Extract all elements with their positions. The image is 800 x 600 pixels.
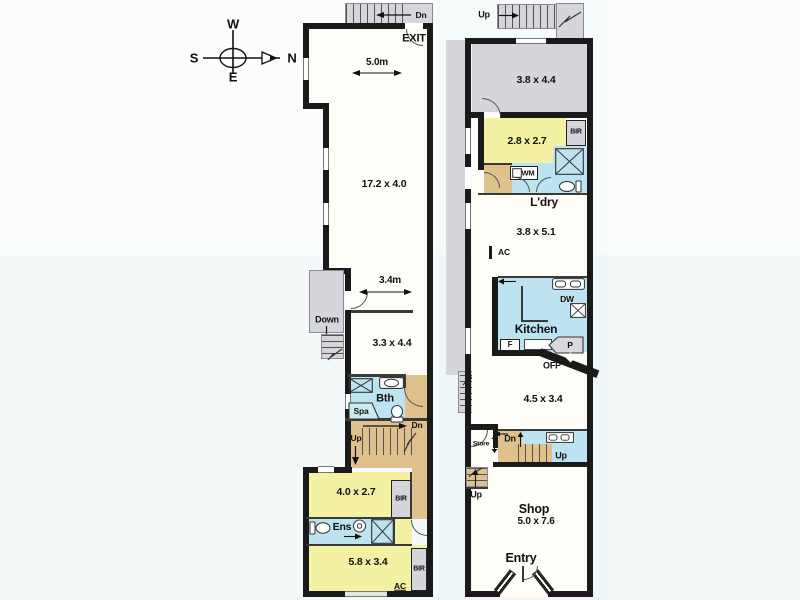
bedroom2-wall-top [306, 544, 412, 546]
window [323, 203, 329, 225]
pantry-icon [548, 336, 584, 354]
compass-e-label: E [229, 71, 237, 84]
shop-stairs-up-label: Up [470, 491, 482, 500]
window [318, 466, 334, 473]
window [465, 128, 471, 154]
toilet-icon [558, 180, 582, 193]
ground-wall-left [465, 38, 471, 597]
room2-wall-left [478, 112, 484, 170]
round-basin-icon [352, 519, 367, 533]
kitchen-label: Kitchen [515, 323, 558, 335]
shower-icon [371, 519, 394, 544]
upper-stairs-dn-label: Dn [416, 11, 427, 20]
window [323, 148, 329, 170]
down-label: Down [315, 316, 339, 325]
mid-zone-wall-top [498, 429, 587, 431]
room4-label: 4.5 x 3.4 [523, 394, 562, 405]
upper-ac-label: AC [394, 582, 406, 591]
window [516, 38, 546, 44]
dim-3-4m-label: 3.4m [379, 276, 401, 286]
bedroom2-door-arc [411, 520, 427, 536]
kitchen-wall-bottom [492, 350, 544, 356]
compass-rose-icon [190, 16, 294, 84]
kitchen-wall-left [492, 277, 498, 352]
upper-hall-tan-b [412, 468, 427, 519]
pantry-label: P [567, 341, 572, 350]
shop-wall-top [493, 462, 587, 467]
stairs-down-arrow-icon [376, 11, 412, 19]
ground-wall-right [587, 38, 593, 597]
shop-up-arrow-icon [472, 469, 479, 487]
laundry-wall-top [484, 163, 512, 165]
living-room-label: 17.2 x 4.0 [362, 179, 407, 190]
bir3-label: BIR [570, 129, 581, 136]
window [303, 58, 309, 80]
stair-break-icon [327, 348, 343, 362]
ac-marker [489, 246, 492, 259]
shower-icon [555, 148, 584, 175]
dishwasher-label: DW [560, 295, 574, 304]
bedroom2-nook [394, 519, 412, 545]
kitchenette-sink-icon [546, 432, 574, 443]
compass-n-label: N [287, 52, 296, 65]
toilet-icon [309, 521, 331, 535]
window [465, 203, 471, 229]
mid-up-arrow-icon [517, 432, 524, 447]
fridge-label: F [508, 341, 513, 349]
mid-stairs-dn-label: Dn [412, 421, 423, 430]
room2-label: 2.8 x 2.7 [507, 136, 546, 147]
exit-label: EXIT [402, 34, 426, 45]
bedroom2-label: 5.8 x 3.4 [348, 557, 387, 568]
room3-label: 3.8 x 5.1 [516, 227, 555, 238]
ofp-label: OFP [543, 362, 561, 371]
ensuite-door-arrow-icon [344, 533, 362, 540]
compass-s-label: S [190, 52, 198, 65]
upper-wall-right [427, 23, 433, 597]
mid-room-label: 3.3 x 4.4 [372, 338, 411, 349]
spa-label: Spa [354, 407, 369, 416]
ground-stairs-up-label: Up [478, 11, 490, 20]
stove-icon [570, 303, 586, 318]
wm-label: WM [522, 169, 535, 177]
toilet-icon [389, 405, 405, 423]
bir1-label: BIR [395, 496, 406, 503]
stair-break-icon [558, 10, 582, 30]
stairs-up-arrow-icon [499, 12, 519, 19]
entry-hall-door-gap [465, 167, 471, 189]
window [465, 328, 471, 354]
mid-stairs-up-label: Up [351, 434, 362, 443]
entry-door-gap [500, 591, 548, 597]
bir2-label: BIR [413, 566, 424, 573]
ground-ac-label: AC [498, 248, 510, 257]
dim-5m-label: 5.0m [366, 58, 388, 68]
store-label: Store [473, 442, 489, 449]
shop-label: Shop [519, 503, 549, 516]
ensuite-wall-right [393, 519, 395, 545]
top-room-label: 3.8 x 4.4 [516, 75, 555, 86]
stair-break-icon [402, 431, 417, 454]
kitchen-entry-arrow-icon [498, 278, 516, 285]
bedroom1-wall-right [410, 472, 412, 518]
floorplan-canvas: W S N E Dn EXIT 5.0m 17.2 x 4.0 [0, 0, 800, 600]
basin-icon [379, 377, 404, 389]
upper-interior-3 [351, 271, 427, 377]
upper-wall-left-b [323, 103, 329, 274]
shop-dim-label: 5.0 x 7.6 [517, 517, 554, 527]
dim-5m-arrow-icon [351, 69, 403, 77]
compass-w-label: W [227, 18, 239, 31]
ensuite-label: Ens [333, 522, 352, 533]
window [345, 591, 387, 597]
counter-line-v [521, 286, 523, 322]
laundry-label: L'dry [530, 196, 558, 208]
stairs-up-arrow-icon [351, 446, 360, 465]
entry-label: Entry [506, 552, 537, 565]
double-sink-icon [552, 278, 585, 290]
stairs-dn-arrow-icon [363, 422, 407, 430]
bedroom2-zone [309, 545, 427, 591]
shower-icon [349, 378, 373, 393]
dim-3-4m-arrow-icon [358, 288, 413, 296]
bedroom1-label: 4.0 x 2.7 [336, 487, 375, 498]
mid-room-wall [351, 310, 413, 313]
dn-arrow-icon [495, 431, 508, 437]
kitchenette-up-label: Up [555, 452, 567, 461]
